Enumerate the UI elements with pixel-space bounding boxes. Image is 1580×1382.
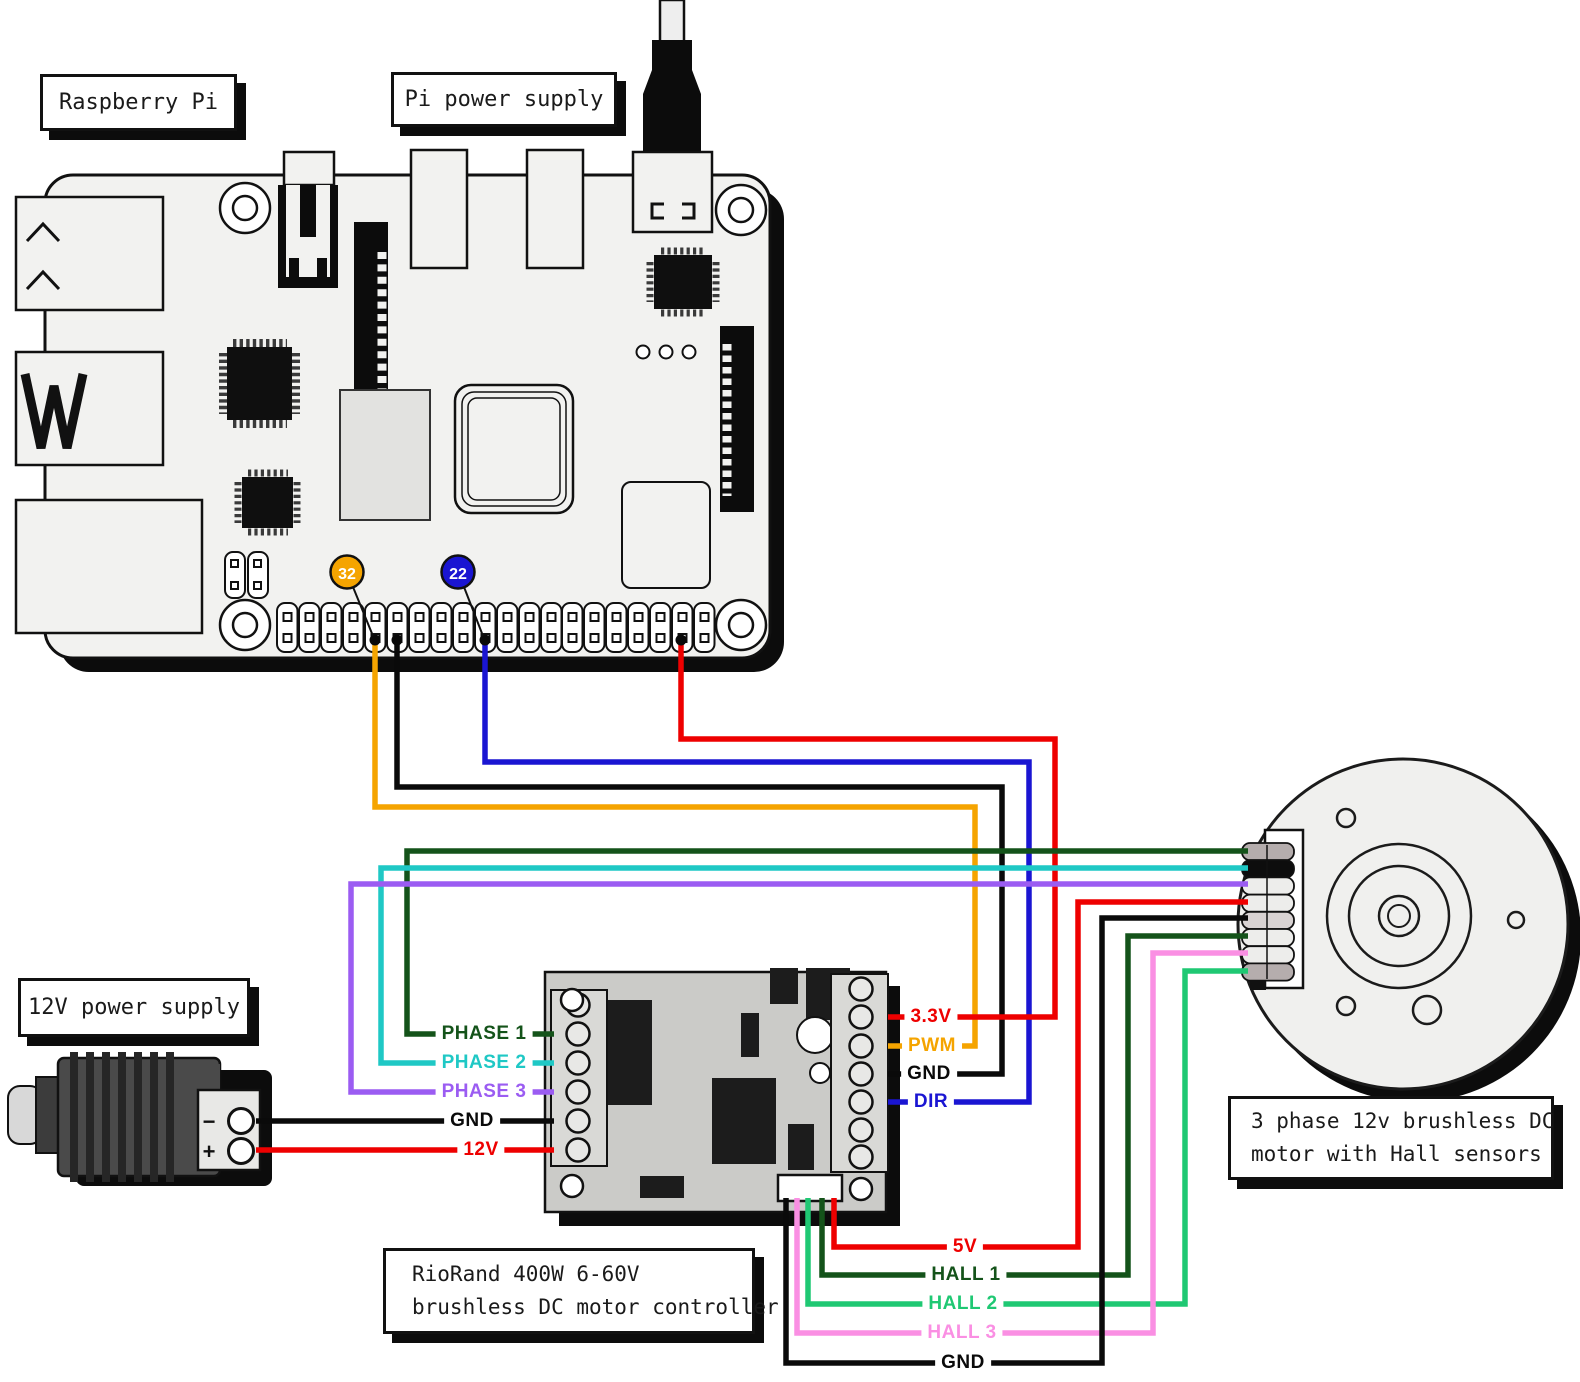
wire-label-dir: DIR (908, 1090, 954, 1114)
wire-label-gnd-right: GND (901, 1062, 957, 1086)
pi-chip-a (223, 343, 296, 424)
controller-label: RioRand 400W 6-60V brushless DC motor co… (383, 1248, 755, 1334)
wire-label-12v: 12V (457, 1138, 504, 1162)
soc-chip (455, 385, 573, 513)
pi-chip-b (238, 473, 297, 532)
wire-label-gnd-bottom: GND (935, 1351, 991, 1375)
hdmi-port-2 (527, 150, 583, 268)
terminal-screw-plus (229, 1139, 254, 1164)
ethernet-port (16, 500, 202, 633)
display-connector (720, 326, 754, 512)
plus-terminal-label: + (203, 1139, 216, 1164)
pin-badge-22-number: 22 (449, 566, 467, 583)
wire-label-hall1: HALL 1 (925, 1263, 1006, 1287)
wire-label-phase2: PHASE 2 (436, 1051, 533, 1075)
wire-3v3 (681, 638, 1055, 1017)
controller-board (545, 968, 900, 1226)
gpio-header (277, 603, 715, 652)
ram-chip (340, 390, 430, 520)
wire-label-gnd-left: GND (444, 1109, 500, 1133)
motor-label: 3 phase 12v brushless DC motor with Hall… (1228, 1096, 1554, 1180)
hdmi-port-1 (411, 150, 467, 268)
motor-label-line2: motor with Hall sensors (1251, 1138, 1542, 1171)
pi-power-supply-label: Pi power supply (391, 72, 617, 127)
controller-label-line2: brushless DC motor controller (412, 1291, 779, 1324)
wiring-diagram: − + (0, 0, 1580, 1382)
pin-badge-32-number: 32 (338, 566, 356, 583)
status-leds (637, 346, 696, 359)
controller-label-line1: RioRand 400W 6-60V (412, 1258, 640, 1291)
minus-terminal-label: − (203, 1109, 216, 1134)
motor (1238, 759, 1580, 1102)
motor-label-line1: 3 phase 12v brushless DC (1251, 1105, 1554, 1138)
wire-label-phase3: PHASE 3 (436, 1080, 533, 1104)
usb-port-2 (16, 352, 163, 465)
twelve-v-power-supply: − + (8, 1052, 272, 1186)
controller-left-terminals (551, 990, 607, 1166)
wire-label-3v3: 3.3V (904, 1005, 957, 1029)
audio-jack (278, 152, 338, 288)
raspberry-pi-board (16, 150, 784, 672)
raspberry-pi-label: Raspberry Pi (40, 74, 237, 131)
wire-label-phase1: PHASE 1 (436, 1022, 533, 1046)
pi-power-plug (643, 0, 701, 160)
terminal-screw-minus (229, 1109, 254, 1134)
wire-label-hall3: HALL 3 (921, 1321, 1002, 1345)
pi-chip-c (650, 251, 716, 313)
wire-label-5v: 5V (947, 1235, 983, 1259)
hall-sensor-connector (778, 1175, 842, 1201)
twelve-v-power-supply-label: 12V power supply (18, 978, 250, 1037)
wire-label-pwm: PWM (902, 1034, 962, 1058)
motor-wire-connector (1242, 830, 1303, 990)
controller-right-terminals (831, 974, 888, 1172)
usb-c-power-port (633, 152, 712, 232)
usb-port-1 (16, 197, 163, 310)
wire-label-hall2: HALL 2 (922, 1292, 1003, 1316)
